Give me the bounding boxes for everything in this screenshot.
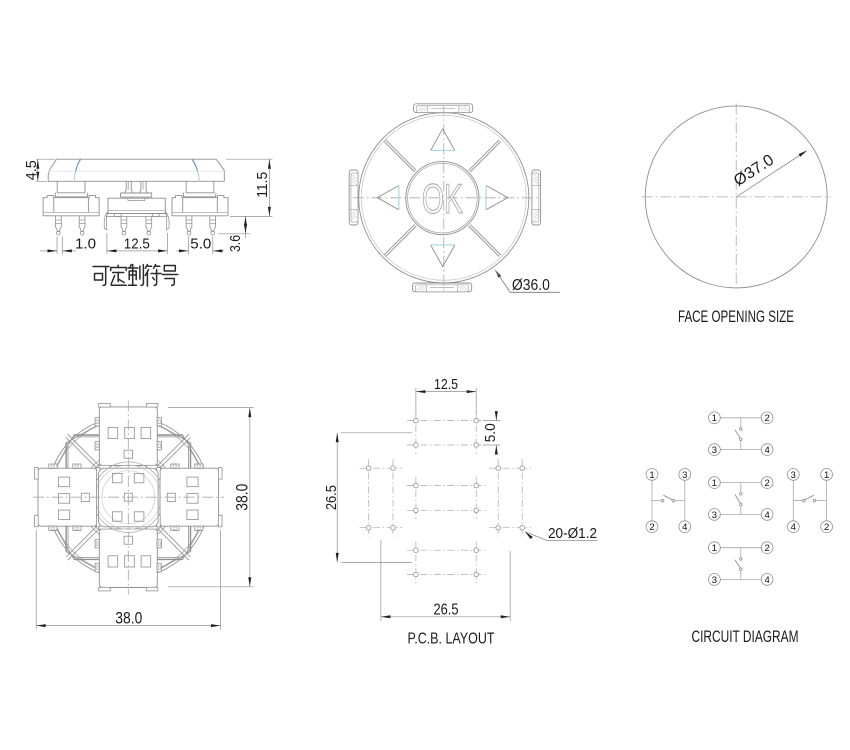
svg-text:1: 1	[824, 470, 829, 481]
svg-text:3: 3	[682, 470, 687, 481]
svg-text:1: 1	[712, 543, 717, 554]
svg-text:2: 2	[649, 522, 654, 533]
svg-text:26.5: 26.5	[323, 485, 340, 510]
svg-text:2: 2	[764, 413, 769, 424]
svg-text:12.5: 12.5	[124, 235, 150, 252]
svg-text:26.5: 26.5	[434, 601, 459, 618]
svg-text:2: 2	[764, 543, 769, 554]
svg-text:20-Ø1.2: 20-Ø1.2	[548, 525, 597, 542]
svg-text:FACE OPENING SIZE: FACE OPENING SIZE	[678, 307, 794, 326]
svg-text:CIRCUIT DIAGRAM: CIRCUIT DIAGRAM	[692, 628, 799, 646]
svg-text:OK: OK	[422, 175, 463, 222]
svg-text:4: 4	[764, 510, 769, 521]
svg-text:3: 3	[712, 575, 717, 586]
svg-text:5.0: 5.0	[190, 235, 211, 252]
svg-text:1: 1	[712, 413, 717, 424]
svg-text:4: 4	[682, 522, 687, 533]
svg-text:5.0: 5.0	[483, 423, 499, 442]
svg-text:P.C.B. LAYOUT: P.C.B. LAYOUT	[408, 631, 495, 648]
svg-text:4.5: 4.5	[24, 160, 40, 180]
svg-text:3: 3	[712, 510, 717, 521]
svg-text:38.0: 38.0	[115, 609, 142, 627]
svg-text:3: 3	[712, 445, 717, 456]
svg-text:3.6: 3.6	[228, 235, 244, 252]
svg-text:4: 4	[764, 575, 769, 586]
svg-text:4: 4	[791, 522, 796, 533]
svg-text:1: 1	[649, 470, 654, 481]
svg-text:2: 2	[824, 522, 829, 533]
svg-text:3: 3	[791, 470, 796, 481]
svg-text:Ø36.0: Ø36.0	[512, 277, 550, 294]
svg-text:38.0: 38.0	[234, 484, 252, 511]
svg-text:4: 4	[764, 445, 769, 456]
svg-text:1: 1	[712, 478, 717, 489]
svg-text:12.5: 12.5	[434, 376, 458, 393]
svg-text:1.0: 1.0	[75, 235, 96, 252]
svg-text:2: 2	[764, 478, 769, 489]
svg-text:11.5: 11.5	[255, 172, 271, 198]
